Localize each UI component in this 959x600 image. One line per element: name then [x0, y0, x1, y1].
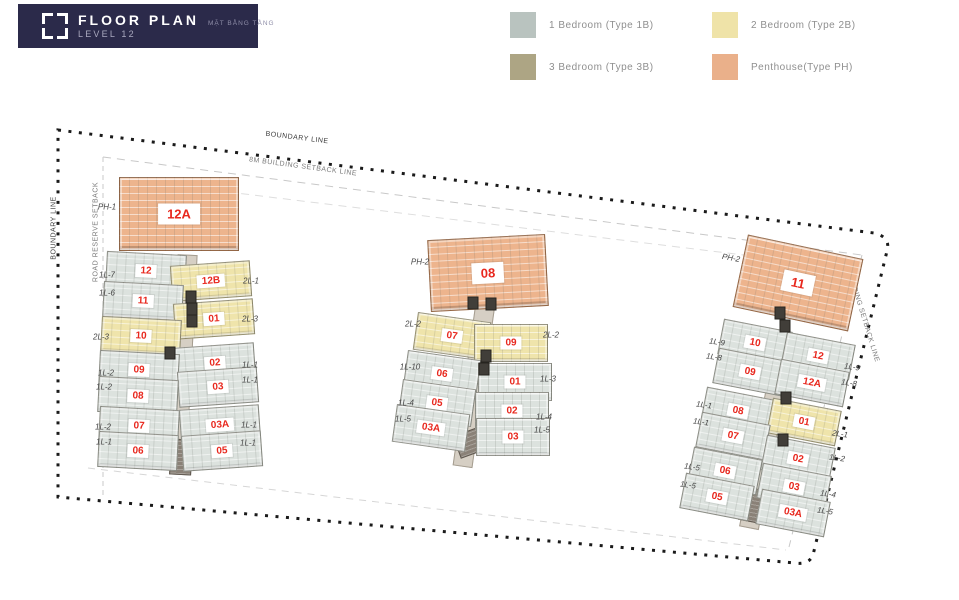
unit-number: 06	[431, 366, 454, 382]
tower-b-type-label-0: PH-2	[411, 258, 429, 267]
legend-item-PH: Penthouse(Type PH)	[712, 54, 932, 80]
unit-number: 03A	[778, 504, 808, 522]
legend-swatch-PH	[712, 54, 738, 80]
unit-number: 06	[713, 463, 736, 480]
site-label-3: ROAD RESERVE SETBACK	[93, 182, 100, 282]
legend: 1 Bedroom (Type 1B)2 Bedroom (Type 2B)3 …	[510, 12, 932, 80]
legend-label-PH: Penthouse(Type PH)	[751, 62, 853, 73]
tower-a-core-2	[187, 315, 198, 328]
unit-number: 02	[501, 405, 522, 418]
tower-a-core-3	[165, 347, 176, 360]
unit-number: 12B	[196, 274, 225, 289]
unit-number: 07	[721, 428, 744, 445]
tower-b-type-label-7: 1L-4	[536, 413, 552, 422]
legend-swatch-2B	[712, 12, 738, 38]
unit-number: 01	[792, 414, 815, 431]
page-title: FLOOR PLAN	[78, 13, 199, 27]
unit-number: 09	[500, 337, 521, 350]
tower-b-core-2	[481, 350, 492, 363]
tower-b-type-label-8: 1L-5	[534, 426, 550, 435]
tower-b-type-label-6: 1L-3	[540, 375, 556, 384]
unit-number: 10	[130, 329, 152, 343]
unit-number: 11	[780, 269, 815, 296]
title-block: FLOOR PLAN MẶT BẰNG TẦNG LEVEL 12	[78, 13, 275, 40]
unit-number: 10	[743, 335, 766, 352]
unit-number: 03A	[205, 418, 234, 433]
tower-b-type-label-5: 2L-2	[543, 331, 559, 340]
tower-a-type-label-3: 2L-3	[93, 333, 109, 342]
tower-a-type-label-7: 1L-1	[96, 438, 112, 447]
unit-number: 05	[211, 444, 233, 458]
title-banner: FLOOR PLAN MẶT BẰNG TẦNG LEVEL 12	[18, 4, 258, 48]
unit-number: 08	[127, 389, 149, 403]
legend-item-3B: 3 Bedroom (Type 3B)	[510, 54, 712, 80]
tower-a-type-label-12: 1L-1	[241, 421, 257, 430]
site-label-2: BOUNDARY LINE	[51, 196, 58, 259]
tower-a-type-label-10: 1L-1	[242, 361, 258, 370]
tower-c-core-1	[780, 320, 791, 333]
unit-number: 12A	[797, 374, 827, 392]
unit-number: 03	[502, 431, 523, 444]
unit-number: 08	[471, 262, 505, 285]
legend-label-1B: 1 Bedroom (Type 1B)	[549, 20, 654, 31]
unit-number: 11	[132, 294, 153, 308]
level-label: LEVEL 12	[78, 30, 275, 39]
tower-b-type-label-2: 1L-10	[400, 363, 420, 372]
unit-number: 12	[135, 264, 157, 278]
unit-number: 03A	[416, 420, 446, 437]
unit-number: 01	[504, 376, 525, 389]
floorplan-page: BOUNDARY LINE8M BUILDING SETBACK LINEBOU…	[0, 0, 959, 600]
tower-b-type-label-1: 2L-2	[405, 320, 421, 329]
tower-b-type-label-3: 1L-4	[398, 399, 414, 408]
tower-b-unit-03: 03	[476, 418, 550, 456]
tower-a-type-label-6: 1L-2	[95, 423, 111, 432]
unit-number: 12A	[158, 204, 200, 225]
tower-a-unit-03: 03	[177, 366, 259, 407]
legend-swatch-3B	[510, 54, 536, 80]
unit-number: 09	[738, 364, 761, 381]
tower-a-type-label-2: 1L-6	[99, 289, 115, 298]
tower-b-core-1	[486, 298, 497, 311]
tower-a-type-label-11: 1L-1	[242, 376, 258, 385]
unit-number: 02	[786, 451, 809, 468]
legend-item-1B: 1 Bedroom (Type 1B)	[510, 12, 712, 38]
tower-c-core-2	[781, 392, 792, 405]
tower-a-type-label-5: 1L-2	[96, 383, 112, 392]
tower-a-unit-05: 05	[181, 430, 263, 471]
unit-number: 01	[203, 312, 225, 326]
unit-number: 06	[127, 444, 149, 458]
brand-logo-icon	[42, 13, 68, 39]
tower-a-type-label-9: 2L-3	[242, 315, 258, 324]
unit-number: 12	[806, 348, 829, 365]
tower-b-core-3	[479, 363, 490, 376]
unit-number: 03	[207, 380, 229, 394]
tower-a-type-label-4: 1L-2	[98, 369, 114, 378]
tower-c-core-3	[778, 434, 789, 447]
unit-number: 07	[128, 419, 150, 433]
tower-c-core-0	[775, 307, 786, 320]
tower-a-unit-11: 11	[102, 281, 184, 321]
tower-a-type-label-0: PH-1	[98, 203, 116, 212]
tower-a-type-label-1: 1L-7	[99, 271, 115, 280]
tower-b-core-0	[468, 297, 479, 310]
legend-label-2B: 2 Bedroom (Type 2B)	[751, 20, 856, 31]
tower-a-type-label-13: 1L-1	[240, 439, 256, 448]
tower-a-unit-12A: 12A	[119, 177, 239, 251]
unit-number: 05	[705, 489, 728, 506]
legend-item-2B: 2 Bedroom (Type 2B)	[712, 12, 932, 38]
unit-number: 07	[441, 328, 464, 344]
legend-swatch-1B	[510, 12, 536, 38]
tower-b-type-label-4: 1L-5	[395, 415, 411, 424]
page-subtitle: MẶT BẰNG TẦNG	[208, 21, 275, 28]
tower-a-type-label-8: 2L-1	[243, 277, 259, 286]
unit-number: 09	[128, 363, 150, 377]
legend-label-3B: 3 Bedroom (Type 3B)	[549, 62, 654, 73]
